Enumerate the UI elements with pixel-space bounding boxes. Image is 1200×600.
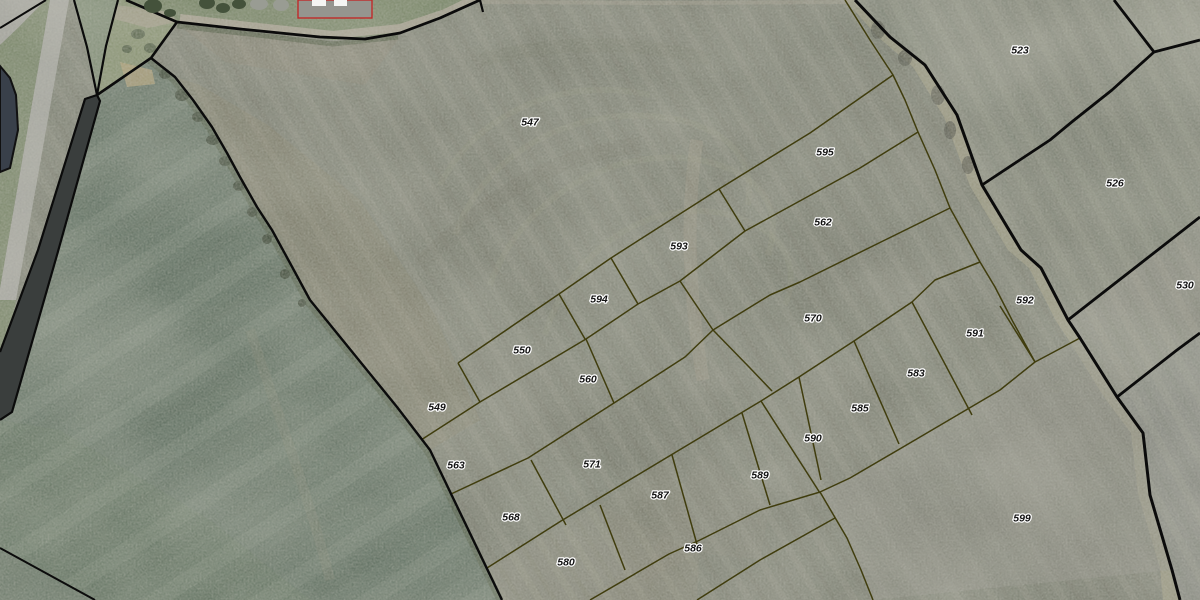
svg-text:550: 550	[513, 345, 531, 357]
svg-text:571: 571	[583, 459, 601, 471]
svg-text:590: 590	[804, 433, 822, 445]
svg-text:583: 583	[907, 368, 925, 380]
svg-text:526: 526	[1106, 178, 1124, 190]
svg-text:549: 549	[428, 402, 446, 414]
svg-text:585: 585	[851, 403, 869, 415]
svg-text:591: 591	[966, 328, 984, 340]
svg-text:570: 570	[804, 313, 822, 325]
svg-text:594: 594	[590, 294, 608, 306]
svg-text:530: 530	[1176, 280, 1194, 292]
svg-text:547: 547	[521, 117, 540, 129]
svg-text:587: 587	[651, 490, 670, 502]
svg-text:523: 523	[1011, 45, 1029, 57]
svg-text:580: 580	[557, 557, 575, 569]
svg-text:560: 560	[579, 374, 597, 386]
svg-text:589: 589	[751, 470, 769, 482]
svg-text:586: 586	[684, 543, 702, 555]
svg-text:593: 593	[670, 241, 688, 253]
svg-text:599: 599	[1013, 513, 1031, 525]
svg-text:595: 595	[816, 147, 834, 159]
svg-text:562: 562	[814, 217, 832, 229]
svg-text:592: 592	[1016, 295, 1034, 307]
svg-text:568: 568	[502, 512, 520, 524]
svg-text:563: 563	[447, 460, 465, 472]
